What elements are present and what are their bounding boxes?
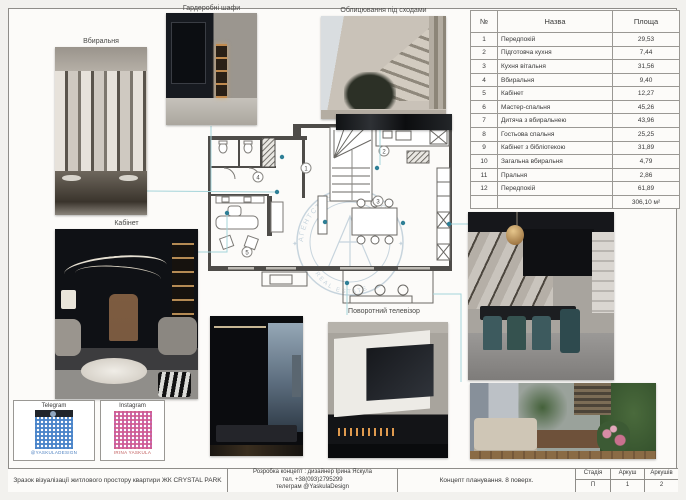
photo-texture [597, 421, 630, 453]
label-rotating-tv: Поворотний телевізор [320, 307, 448, 316]
photo-texture [338, 428, 396, 436]
design-board-page: { "labels": { "dressing_room": "Вбиральн… [0, 0, 686, 500]
cell-name: Гостьова спальня [498, 128, 613, 142]
cell-name: Мастер-спальня [498, 100, 613, 114]
plan-shaft-hatched [262, 138, 275, 167]
table-row: 1Передпокій29,53 [471, 33, 680, 47]
photo-texture [507, 316, 526, 350]
sheet-value: 1 [610, 480, 644, 492]
cell-name: Кабінет [498, 87, 613, 101]
instagram-qr-code [114, 411, 152, 449]
instagram-label: Instagram [101, 403, 164, 409]
photo-texture [292, 355, 301, 397]
table-row: 5Кабінет12,27 [471, 87, 680, 101]
cell-name: Кухня вітальня [498, 60, 613, 74]
svg-text:✦: ✦ [398, 240, 404, 248]
photo-texture [61, 290, 77, 309]
label-stair-cladding: Облицювання під сходами [311, 6, 456, 15]
table-row: 2Підготовча кухня7,44 [471, 46, 680, 60]
cell-name: Вбиральня [498, 73, 613, 87]
photo-texture [560, 309, 580, 353]
photo-texture [523, 229, 593, 276]
cell-name: Підготовча кухня [498, 46, 613, 60]
sheet-info-table: Стадія Аркуш Аркушів П 1 2 [576, 469, 678, 492]
total-empty-cell [471, 196, 498, 209]
table-header-row: № Назва Площа [471, 11, 680, 33]
col-header-number: № [471, 11, 498, 33]
photo-texture [532, 316, 551, 350]
cell-area: 45,26 [613, 100, 680, 114]
col-header-area: Площа [613, 11, 680, 33]
photo-texture [483, 316, 502, 350]
cell-area: 43,96 [613, 114, 680, 128]
cell-area: 4,79 [613, 155, 680, 169]
photo-texture [592, 232, 614, 313]
photo-texture [55, 319, 81, 356]
photo-office [55, 229, 198, 399]
room-area-table: № Назва Площа 1Передпокій29,532Підготовч… [470, 10, 680, 209]
cell-area: 31,56 [613, 60, 680, 74]
photo-texture [171, 22, 206, 84]
cell-name: Пральня [498, 168, 613, 182]
svg-text:✦: ✦ [292, 240, 298, 248]
cell-name: Кабінет з бібліотекою [498, 141, 613, 155]
photo-texture [574, 383, 611, 415]
photo-texture [216, 425, 298, 442]
photo-stair-cladding [321, 16, 446, 119]
telegram-handle: @YASKULADESIGN [14, 450, 94, 455]
cell-area: 7,44 [613, 46, 680, 60]
watermark-arc-bottom: REAL ESTATE [313, 271, 369, 295]
table-row: 4Вбиральня9,40 [471, 73, 680, 87]
table-row: 3Кухня вітальня31,56 [471, 60, 680, 74]
telegram-label: Telegram [14, 403, 94, 409]
photo-texture [158, 372, 191, 398]
telegram-qr-card[interactable]: Telegram @YASKULADESIGN [13, 400, 95, 461]
plan-dining-table [352, 199, 397, 244]
table-row: 11Пральня2,86 [471, 168, 680, 182]
cell-number: 9 [471, 141, 498, 155]
svg-text:REAL ESTATE: REAL ESTATE [313, 271, 369, 295]
sheets-label: Аркушів [644, 469, 678, 480]
photo-dark-panel-strip [336, 114, 452, 130]
col-header-name: Назва [498, 11, 613, 33]
cell-area: 31,89 [613, 141, 680, 155]
photo-texture [81, 358, 147, 384]
cell-name: Передпокій [498, 33, 613, 47]
photo-texture [166, 98, 257, 125]
photo-balcony [470, 383, 656, 459]
cell-number: 8 [471, 128, 498, 142]
title-block: Зразок візуалізації житлового простору к… [8, 468, 678, 492]
cell-number: 10 [471, 155, 498, 169]
table-row: 10Загальна вбиральня4,79 [471, 155, 680, 169]
cell-number: 1 [471, 33, 498, 47]
photo-texture [470, 451, 656, 459]
total-empty-cell [498, 196, 613, 209]
concept-title: Концепт планування. 8 поверх. [398, 469, 576, 492]
instagram-qr-card[interactable]: Instagram IRINA YASKULA [100, 400, 165, 461]
cell-name: Загальна вбиральня [498, 155, 613, 169]
cell-area: 61,89 [613, 182, 680, 196]
photo-texture [109, 294, 138, 342]
sheets-value: 2 [644, 480, 678, 492]
label-wardrobes: Гардеробні шафи [156, 4, 267, 13]
photo-texture [328, 444, 448, 458]
cell-area: 12,27 [613, 87, 680, 101]
photo-texture [526, 430, 608, 448]
photo-tv-bench [210, 316, 303, 456]
cell-name: Дитяча з вбиральнею [498, 114, 613, 128]
cell-name: Передпокій [498, 182, 613, 196]
table-total-row: 306,10 м² [471, 196, 680, 209]
table-row: 6Мастер-спальня45,26 [471, 100, 680, 114]
sheet-label: Аркуш [610, 469, 644, 480]
cell-number: 7 [471, 114, 498, 128]
telegram-logo-band [35, 410, 73, 417]
photo-texture [214, 326, 266, 328]
photo-texture [474, 418, 537, 454]
table-row: 9Кабінет з бібліотекою31,89 [471, 141, 680, 155]
developer-telegram: телеграм @YaskulaDesign [253, 484, 372, 492]
sample-visualization-text: Зразок візуалізації житлового простору к… [8, 469, 228, 492]
label-dressing-room: Вбиральня [55, 37, 147, 46]
developer-info: Розробка концепт : дизайнер Ірина Яскула… [228, 469, 398, 492]
table-row: 12Передпокій61,89 [471, 182, 680, 196]
photo-dining-room [468, 212, 614, 380]
photo-texture [210, 445, 303, 456]
plan-stairs [330, 127, 372, 201]
plan-office-furniture [216, 202, 283, 250]
cell-number: 3 [471, 60, 498, 74]
cell-number: 4 [471, 73, 498, 87]
cell-area: 2,86 [613, 168, 680, 182]
total-area-value: 306,10 м² [613, 196, 680, 209]
photo-wardrobes [166, 13, 257, 125]
photo-texture [55, 47, 147, 71]
table-row: 7Дитяча з вбиральнею43,96 [471, 114, 680, 128]
cell-number: 11 [471, 168, 498, 182]
telegram-qr-code [35, 411, 73, 449]
cell-area: 9,40 [613, 73, 680, 87]
label-office: Кабінет [55, 219, 198, 228]
instagram-handle: IRINA YASKULA [101, 450, 164, 455]
photo-texture [366, 344, 433, 401]
photo-dressing-room [55, 47, 147, 215]
photo-rotating-tv [328, 322, 448, 458]
table-row: 8Гостьова спальня25,25 [471, 128, 680, 142]
photo-texture [344, 72, 397, 109]
photo-texture [158, 317, 197, 354]
cell-area: 29,53 [613, 33, 680, 47]
cell-number: 6 [471, 100, 498, 114]
developer-phone: тел. +38(093)2795299 [253, 477, 372, 485]
cell-number: 2 [471, 46, 498, 60]
cell-number: 5 [471, 87, 498, 101]
photo-texture [429, 16, 447, 109]
cell-area: 25,25 [613, 128, 680, 142]
developer-line-1: Розробка концепт : дизайнер Ірина Яскула [253, 469, 372, 477]
stage-value: П [576, 480, 610, 492]
stage-label: Стадія [576, 469, 610, 480]
photo-texture [216, 44, 227, 98]
cell-number: 12 [471, 182, 498, 196]
